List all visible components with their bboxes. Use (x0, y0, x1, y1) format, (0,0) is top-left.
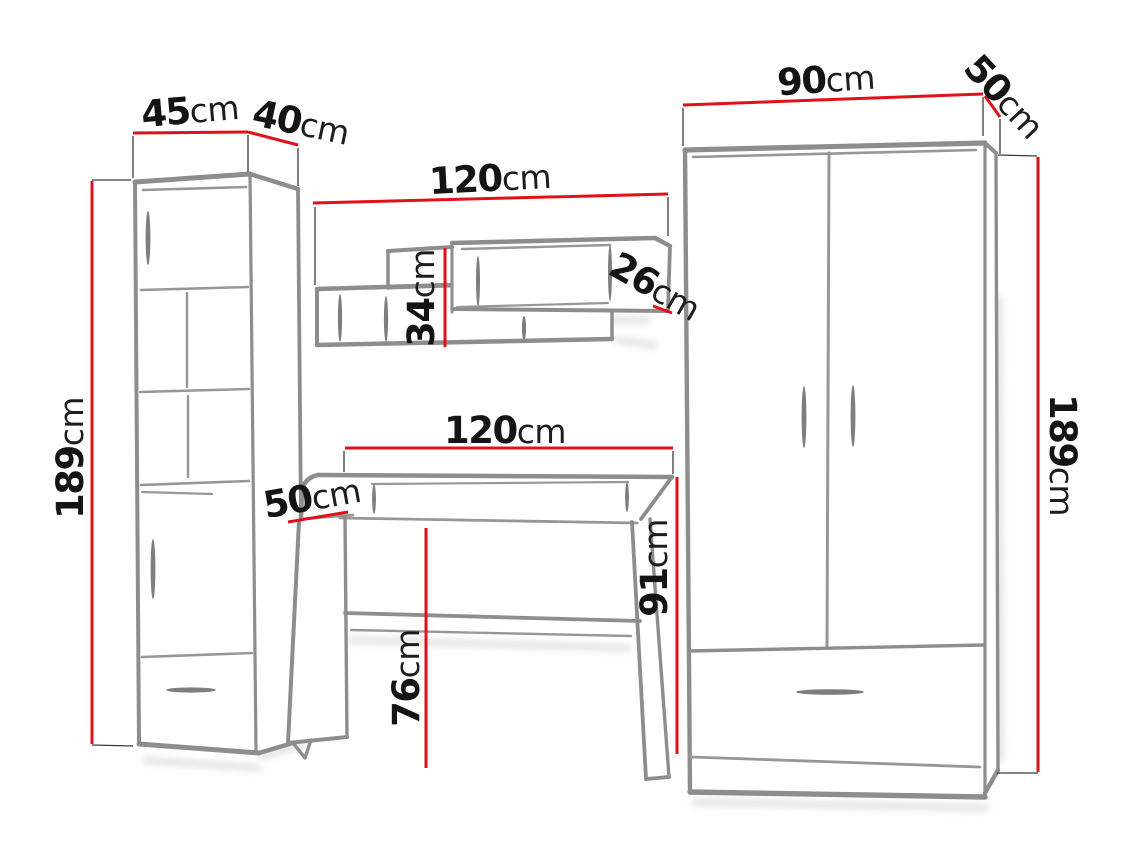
bookcase-drawer-handle (166, 687, 216, 692)
desk-sketch (288, 475, 672, 779)
dim-label-bookcase-height: 189cm (49, 397, 92, 519)
dim-label-desk-width: 120cm (444, 409, 566, 452)
bookcase-top-door-handle (146, 211, 151, 265)
wardrobe-front-face (685, 143, 985, 793)
bookcase-sketch (135, 174, 303, 753)
shelf-accent-stroke (338, 294, 342, 342)
dim-label-wardrobe-depth: 50cm (955, 46, 1053, 147)
shelf-accent-stroke (522, 316, 526, 340)
dim-label-bookcase-width: 45cm (139, 85, 240, 136)
dim-label-shelf-width: 120cm (428, 154, 552, 203)
wardrobe-sketch (685, 143, 998, 797)
wardrobe-right-door-handle (851, 385, 856, 447)
dim-label-wardrobe-height: 189cm (1041, 394, 1084, 516)
dim-label-desk-height: 76cm (385, 629, 428, 727)
dim-label-wardrobe-width: 90cm (776, 55, 877, 105)
furniture-dimension-diagram: 45cm 40cm 189cm 120cm 34cm 26cm 120cm 50… (0, 0, 1133, 849)
diagram-canvas: 45cm 40cm 189cm 120cm 34cm 26cm 120cm 50… (0, 0, 1133, 849)
bookcase-lower-door-handle (151, 539, 156, 599)
dim-label-desk-back-height: 91cm (633, 519, 676, 617)
dim-label-shelf-height: 34cm (400, 249, 443, 347)
wardrobe-drawer-handle (796, 689, 864, 695)
bookcase-front-face (135, 174, 256, 750)
shelf-accent-stroke (384, 296, 388, 342)
dim-label-bookcase-depth: 40cm (249, 91, 354, 153)
wardrobe-door-split (827, 153, 829, 648)
wardrobe-left-door-handle (802, 386, 807, 448)
